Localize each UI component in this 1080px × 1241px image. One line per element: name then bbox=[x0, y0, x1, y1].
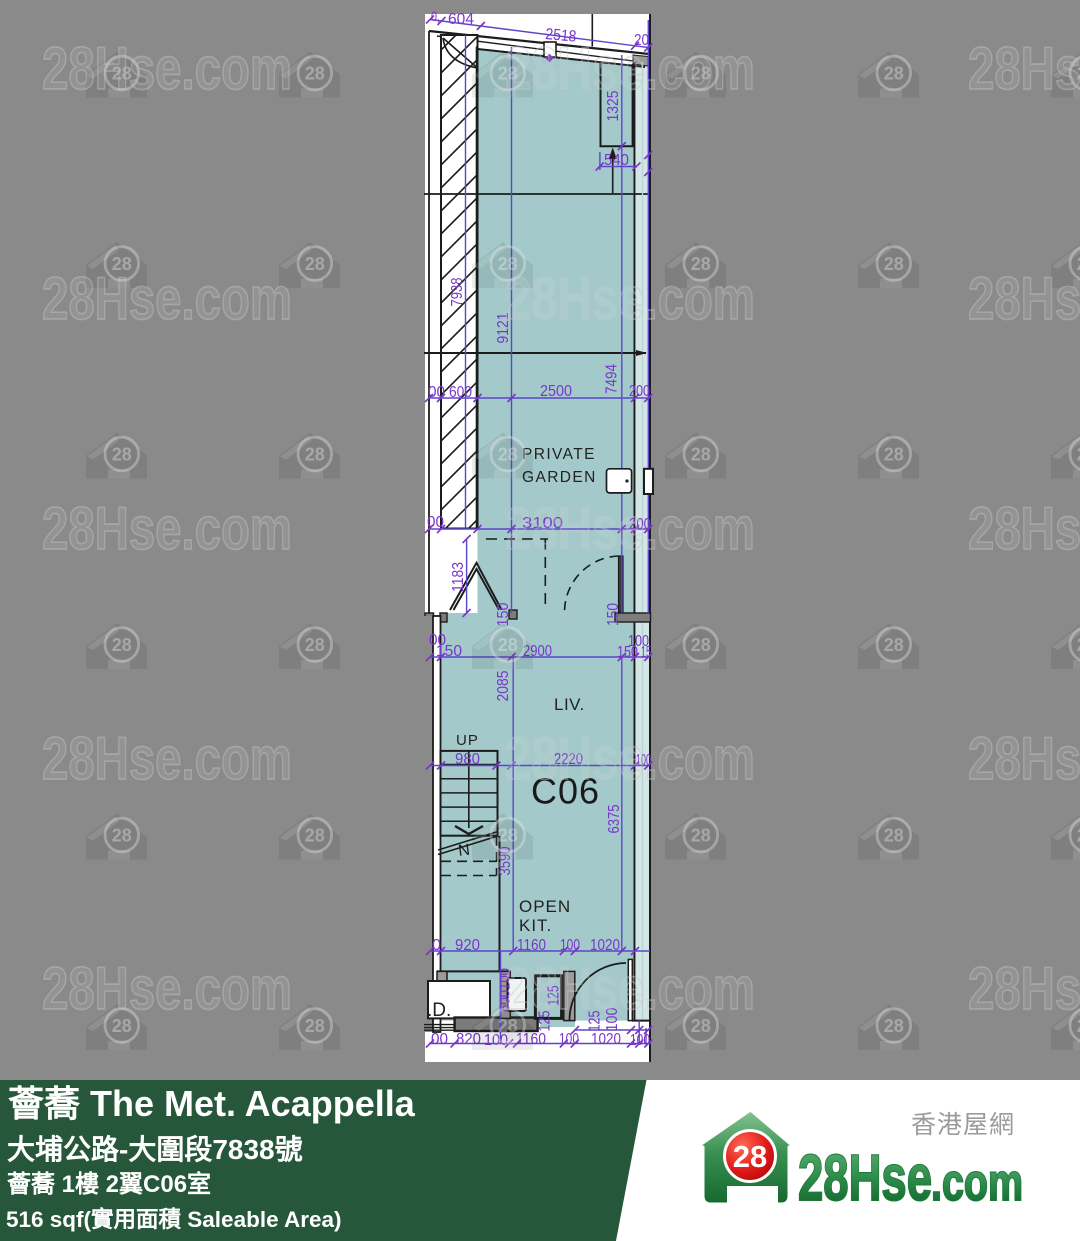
svg-text:00: 00 bbox=[427, 514, 444, 531]
svg-text:2085: 2085 bbox=[495, 671, 512, 702]
svg-text:KIT.: KIT. bbox=[519, 916, 552, 935]
svg-text:.com: .com bbox=[931, 1154, 1023, 1212]
svg-text:0: 0 bbox=[432, 937, 441, 954]
svg-text:.D.: .D. bbox=[427, 1000, 451, 1021]
svg-text:大埔公路-大圍段7838號: 大埔公路-大圍段7838號 bbox=[7, 1133, 303, 1165]
svg-text:28Hse: 28Hse bbox=[798, 1141, 932, 1214]
svg-text:LIV.: LIV. bbox=[554, 695, 585, 714]
svg-text:6375: 6375 bbox=[606, 805, 623, 834]
svg-text:600: 600 bbox=[449, 384, 472, 401]
svg-text:GARDEN: GARDEN bbox=[522, 469, 597, 486]
svg-text:00: 00 bbox=[428, 384, 445, 401]
svg-text:150: 150 bbox=[436, 643, 462, 660]
svg-text:7938: 7938 bbox=[449, 278, 466, 307]
svg-text:00: 00 bbox=[431, 1031, 448, 1048]
svg-text:150: 150 bbox=[495, 602, 512, 626]
svg-text:516 sqf(實用面積 Saleable Area): 516 sqf(實用面積 Saleable Area) bbox=[6, 1206, 342, 1232]
svg-text:7494: 7494 bbox=[603, 364, 620, 394]
svg-text:100: 100 bbox=[560, 937, 580, 954]
svg-text:150: 150 bbox=[605, 603, 622, 626]
svg-text:OPEN: OPEN bbox=[519, 897, 571, 916]
svg-text:980: 980 bbox=[455, 751, 480, 768]
svg-text:1183: 1183 bbox=[450, 562, 467, 592]
svg-text:薈蕎 The Met. Acappella: 薈蕎 The Met. Acappella bbox=[8, 1083, 416, 1124]
svg-text:1020: 1020 bbox=[591, 1031, 621, 1048]
svg-text:香港屋網: 香港屋網 bbox=[911, 1111, 1015, 1139]
svg-text:540: 540 bbox=[604, 152, 629, 169]
svg-text:薈蕎 1樓 2翼C06室: 薈蕎 1樓 2翼C06室 bbox=[6, 1170, 211, 1198]
svg-text:920: 920 bbox=[455, 937, 480, 954]
svg-text:100: 100 bbox=[630, 1032, 650, 1049]
svg-text:150: 150 bbox=[617, 644, 638, 661]
svg-text:PRIVATE: PRIVATE bbox=[522, 446, 596, 463]
svg-text:2500: 2500 bbox=[540, 383, 572, 400]
svg-text:1020: 1020 bbox=[590, 937, 620, 954]
svg-text:UP: UP bbox=[456, 732, 479, 749]
svg-text:0,: 0, bbox=[431, 8, 440, 24]
svg-text:1160: 1160 bbox=[517, 937, 546, 954]
svg-text:N: N bbox=[457, 842, 471, 860]
svg-text:28: 28 bbox=[733, 1139, 767, 1174]
svg-text:604: 604 bbox=[448, 11, 474, 28]
svg-text:15: 15 bbox=[641, 644, 651, 661]
svg-text:200: 200 bbox=[629, 383, 650, 400]
svg-text:100: 100 bbox=[559, 1031, 579, 1048]
